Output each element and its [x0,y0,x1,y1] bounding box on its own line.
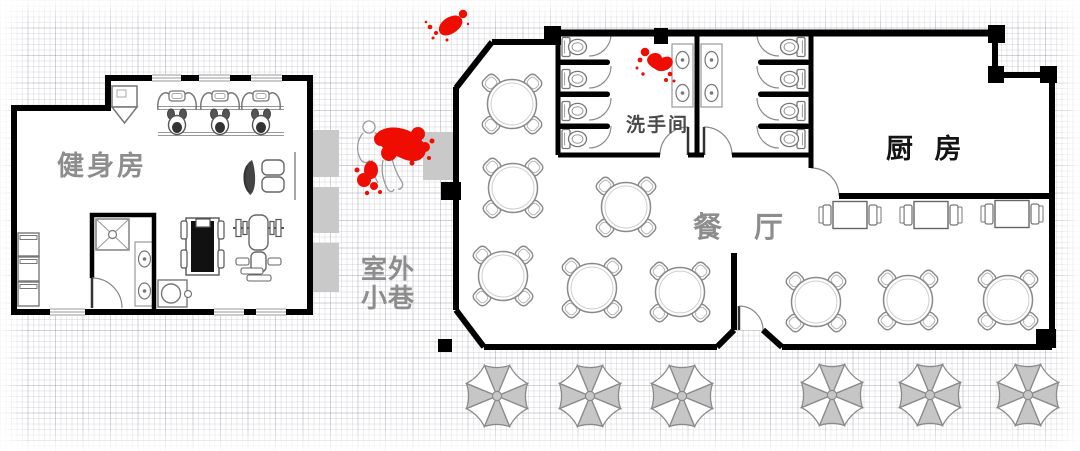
toilet-icon [781,38,806,57]
round-table [784,270,848,334]
round-table [876,268,940,332]
crate-3 [313,243,339,292]
round-table [648,260,712,324]
umbrella-icon [900,365,961,426]
toilet-icon [562,130,587,149]
round-table [480,72,544,136]
toilet-icon [562,102,587,121]
square-table [900,202,962,229]
blood-splatter-body [355,127,435,195]
alley-label-line2: 小巷 [352,284,424,313]
round-table [560,256,624,320]
toilet-icon [781,70,806,89]
umbrella-icon [998,365,1059,426]
washing-machine-icon [158,280,192,307]
round-table [976,268,1040,332]
umbrella-icon [652,366,713,427]
toilet-icon [562,38,587,57]
blood-splatter-alley [425,10,469,42]
outdoor-umbrellas [467,365,1059,427]
stall-partition [758,124,810,130]
round-table [481,156,545,220]
round-table [594,175,658,239]
alley-pillar [438,339,452,352]
toilet-icon [562,70,587,89]
toilet-icon [781,102,806,121]
dining-label: 餐 厅 [693,204,795,246]
shower-stall-icon [96,219,129,250]
square-table [819,202,881,229]
treadmill-black-icon [181,218,224,275]
floorplan-svg [0,0,1080,451]
dumpster [423,132,453,180]
stall-partition [758,92,810,98]
restroom-label: 洗手间 [626,110,689,137]
stacked-stools [18,233,39,306]
floorplan-canvas: 健身房 洗手间 厨 房 餐 厅 室外 小巷 [0,0,1080,451]
alley-label-line1: 室外 [352,255,424,284]
stall-partition [558,60,610,66]
umbrella-icon [802,365,863,426]
stall-partition [558,124,610,130]
sink-counter-icon [135,242,154,306]
square-table [981,201,1043,228]
alley-label: 室外 小巷 [352,255,424,313]
umbrella-icon [560,366,621,427]
crate-2 [313,187,339,233]
stall-partition [758,60,810,66]
restaurant-floor [456,30,1052,347]
kitchen-label: 厨 房 [886,127,969,166]
umbrella-icon [467,366,528,427]
crate-1 [313,130,339,177]
stall-partition [558,92,610,98]
gym-label: 健身房 [57,144,147,183]
round-table [471,244,535,308]
toilet-icon [781,130,806,149]
window [152,74,282,82]
